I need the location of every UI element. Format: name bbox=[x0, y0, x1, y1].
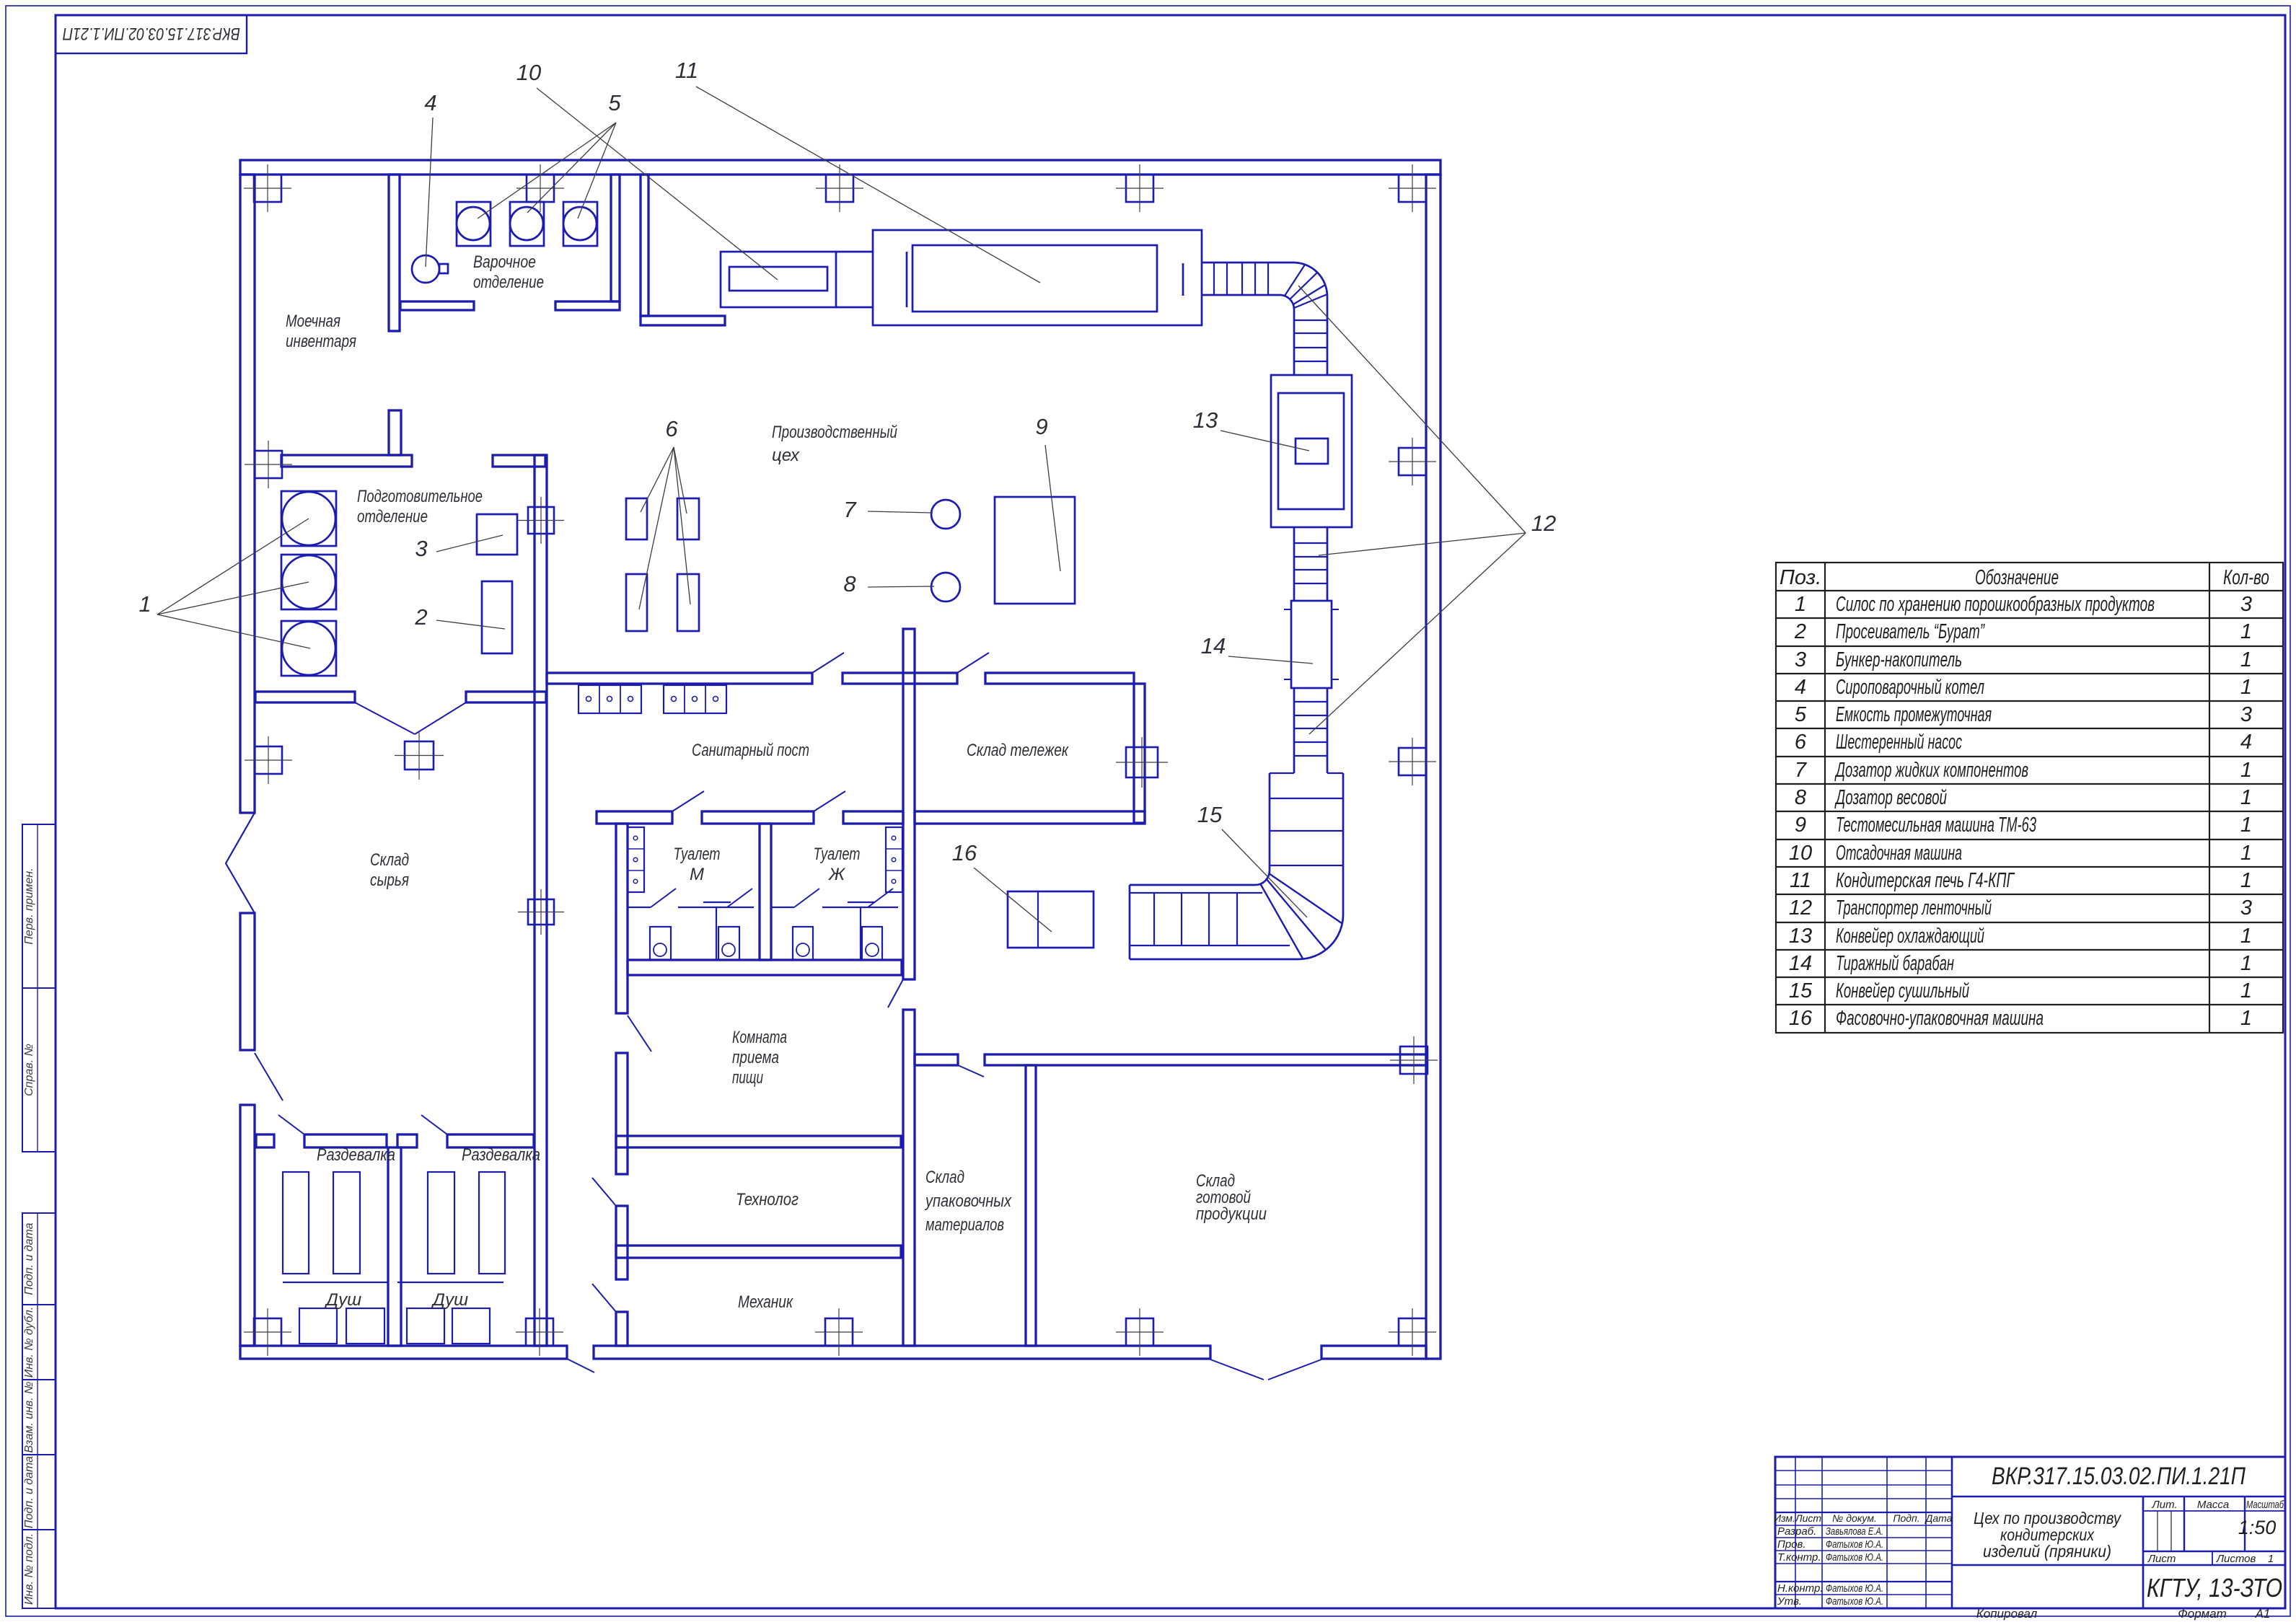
svg-text:материалов: материалов bbox=[925, 1215, 1004, 1235]
svg-text:10: 10 bbox=[516, 60, 541, 85]
svg-text:1: 1 bbox=[2240, 952, 2252, 975]
svg-text:11: 11 bbox=[1790, 869, 1811, 892]
svg-text:Склад: Склад bbox=[925, 1168, 964, 1187]
svg-text:Т.контр.: Т.контр. bbox=[1777, 1551, 1821, 1564]
svg-text:9: 9 bbox=[1035, 414, 1047, 439]
svg-text:Душ: Душ bbox=[431, 1290, 468, 1310]
svg-text:инвентаря: инвентаря bbox=[286, 332, 356, 351]
svg-text:Бункер-накопитель: Бункер-накопитель bbox=[1836, 648, 1962, 671]
svg-text:15: 15 bbox=[1789, 979, 1813, 1002]
svg-text:Фатыхов Ю.А.: Фатыхов Ю.А. bbox=[1826, 1582, 1883, 1595]
svg-text:Шестеренный насос: Шестеренный насос bbox=[1836, 731, 1962, 754]
svg-text:Взам. инв. №: Взам. инв. № bbox=[23, 1382, 35, 1453]
svg-text:приема: приема bbox=[732, 1048, 779, 1067]
svg-text:1: 1 bbox=[2240, 620, 2252, 643]
svg-text:1: 1 bbox=[2240, 786, 2252, 809]
svg-text:Лит.: Лит. bbox=[2151, 1499, 2177, 1511]
svg-text:Пров.: Пров. bbox=[1777, 1538, 1806, 1551]
svg-text:10: 10 bbox=[1789, 842, 1812, 865]
svg-text:3: 3 bbox=[415, 536, 427, 561]
svg-text:2: 2 bbox=[414, 604, 427, 630]
svg-text:Подп.: Подп. bbox=[1893, 1512, 1919, 1524]
svg-text:7: 7 bbox=[843, 497, 857, 522]
svg-text:Кондитерская печь Г4-КПГ: Кондитерская печь Г4-КПГ bbox=[1836, 869, 2015, 892]
svg-text:Ж: Ж bbox=[828, 865, 846, 884]
svg-text:Разраб.: Разраб. bbox=[1777, 1525, 1816, 1538]
svg-text:4: 4 bbox=[2240, 731, 2252, 754]
svg-text:Отсадочная машина: Отсадочная машина bbox=[1836, 842, 1962, 865]
svg-text:Производственный: Производственный bbox=[772, 423, 897, 442]
svg-text:1: 1 bbox=[138, 591, 151, 617]
svg-text:пищи: пищи bbox=[732, 1068, 763, 1088]
svg-text:Инв. № подл.: Инв. № подл. bbox=[23, 1533, 35, 1605]
svg-text:1: 1 bbox=[2240, 676, 2252, 699]
svg-text:1: 1 bbox=[2240, 814, 2252, 837]
svg-text:ВКР.317.15.03.02.ПИ.1.21П: ВКР.317.15.03.02.ПИ.1.21П bbox=[63, 24, 240, 43]
svg-text:1: 1 bbox=[2240, 842, 2252, 865]
svg-text:5: 5 bbox=[1795, 703, 1807, 726]
svg-text:Копировал: Копировал bbox=[1976, 1607, 2038, 1621]
svg-text:Поз.: Поз. bbox=[1780, 566, 1821, 589]
svg-text:2: 2 bbox=[1794, 620, 1806, 643]
svg-text:1: 1 bbox=[2240, 869, 2252, 892]
svg-text:Фатыхов Ю.А.: Фатыхов Ю.А. bbox=[1826, 1595, 1883, 1608]
svg-text:№ докум.: № докум. bbox=[1832, 1512, 1877, 1524]
svg-text:Санитарный пост: Санитарный пост bbox=[692, 741, 809, 760]
svg-text:9: 9 bbox=[1795, 814, 1806, 837]
svg-text:1: 1 bbox=[2240, 1007, 2252, 1030]
svg-text:Конвейер охлаждающий: Конвейер охлаждающий bbox=[1836, 925, 1984, 948]
svg-text:Листов: Листов bbox=[2216, 1553, 2256, 1565]
svg-text:Подп. и дата: Подп. и дата bbox=[23, 1456, 35, 1528]
svg-text:1: 1 bbox=[2268, 1553, 2274, 1565]
svg-text:Фатыхов Ю.А.: Фатыхов Ю.А. bbox=[1826, 1538, 1883, 1551]
svg-text:Дозатор жидких компонентов: Дозатор жидких компонентов bbox=[1834, 759, 2028, 782]
svg-text:Кол-во: Кол-во bbox=[2223, 566, 2269, 589]
svg-text:Перв. примен.: Перв. примен. bbox=[23, 868, 35, 944]
svg-text:4: 4 bbox=[424, 90, 436, 115]
svg-text:Лист: Лист bbox=[2147, 1553, 2176, 1565]
svg-text:Моечная: Моечная bbox=[286, 312, 340, 331]
svg-text:16: 16 bbox=[952, 840, 977, 865]
svg-text:Склад: Склад bbox=[370, 850, 409, 870]
svg-text:16: 16 bbox=[1789, 1007, 1813, 1030]
svg-text:Обозначение: Обозначение bbox=[1975, 566, 2059, 589]
svg-text:3: 3 bbox=[1795, 648, 1806, 671]
svg-text:цех: цех bbox=[772, 446, 800, 465]
svg-text:Инв. № дубл.: Инв. № дубл. bbox=[23, 1307, 35, 1378]
svg-text:Душ: Душ bbox=[324, 1290, 361, 1310]
svg-text:Сироповарочный котел: Сироповарочный котел bbox=[1836, 676, 1984, 699]
svg-text:Подготовительное: Подготовительное bbox=[357, 487, 483, 506]
svg-text:отделение: отделение bbox=[473, 273, 544, 292]
svg-text:Транспортер ленточный: Транспортер ленточный bbox=[1836, 896, 1992, 920]
svg-text:Завьялова Е.А.: Завьялова Е.А. bbox=[1826, 1525, 1883, 1538]
svg-text:1: 1 bbox=[2240, 759, 2252, 782]
svg-text:3: 3 bbox=[2240, 593, 2252, 616]
svg-text:12: 12 bbox=[1789, 896, 1812, 920]
svg-text:Дозатор весовой: Дозатор весовой bbox=[1834, 786, 1947, 809]
svg-text:6: 6 bbox=[665, 416, 678, 441]
svg-text:1: 1 bbox=[2240, 979, 2252, 1002]
svg-text:Склад тележек: Склад тележек bbox=[967, 741, 1069, 760]
svg-text:Фасовочно-упаковочная машина: Фасовочно-упаковочная машина bbox=[1836, 1007, 2044, 1030]
svg-text:14: 14 bbox=[1789, 952, 1812, 975]
svg-text:Утв.: Утв. bbox=[1777, 1595, 1802, 1608]
svg-text:ВКР.317.15.03.02.ПИ.1.21П: ВКР.317.15.03.02.ПИ.1.21П bbox=[1992, 1463, 2246, 1490]
svg-text:1: 1 bbox=[1795, 593, 1806, 616]
svg-text:15: 15 bbox=[1197, 802, 1223, 827]
svg-text:1: 1 bbox=[2240, 925, 2252, 948]
svg-text:11: 11 bbox=[675, 58, 698, 83]
svg-text:Силос по хранению порошкообраз: Силос по хранению порошкообразных продук… bbox=[1836, 593, 2155, 616]
svg-text:5: 5 bbox=[608, 90, 621, 115]
svg-text:3: 3 bbox=[2240, 896, 2252, 920]
svg-text:Конвейер сушильный: Конвейер сушильный bbox=[1836, 979, 1969, 1002]
svg-text:Справ. №: Справ. № bbox=[23, 1044, 35, 1096]
svg-text:Подп. и дата: Подп. и дата bbox=[23, 1222, 35, 1295]
svg-text:Масса: Масса bbox=[2197, 1499, 2229, 1511]
svg-text:13: 13 bbox=[1789, 925, 1812, 948]
svg-text:Тестомесильная машина ТМ-63: Тестомесильная машина ТМ-63 bbox=[1836, 814, 2036, 837]
svg-text:7: 7 bbox=[1795, 759, 1808, 782]
svg-text:Раздевалка: Раздевалка bbox=[317, 1145, 395, 1165]
svg-text:Комната: Комната bbox=[732, 1028, 787, 1047]
svg-text:продукции: продукции bbox=[1196, 1204, 1267, 1224]
svg-text:4: 4 bbox=[1795, 676, 1806, 699]
svg-text:Варочное: Варочное bbox=[473, 252, 536, 272]
svg-text:Н.контр.: Н.контр. bbox=[1777, 1582, 1824, 1595]
svg-text:Раздевалка: Раздевалка bbox=[462, 1145, 540, 1165]
svg-text:Туалет: Туалет bbox=[674, 845, 721, 864]
svg-text:3: 3 bbox=[2240, 703, 2252, 726]
svg-text:Механик: Механик bbox=[738, 1292, 793, 1312]
svg-text:изделий (пряники): изделий (пряники) bbox=[1983, 1542, 2111, 1561]
svg-text:Формат: Формат bbox=[2178, 1607, 2227, 1621]
svg-text:упаковочных: упаковочных bbox=[924, 1191, 1011, 1211]
svg-text:сырья: сырья bbox=[370, 870, 409, 890]
svg-text:Технолог: Технолог bbox=[736, 1190, 799, 1209]
svg-text:отделение: отделение bbox=[357, 507, 428, 526]
svg-text:6: 6 bbox=[1795, 731, 1807, 754]
svg-text:М: М bbox=[690, 865, 704, 884]
svg-text:14: 14 bbox=[1201, 633, 1226, 658]
svg-text:Тиражный барабан: Тиражный барабан bbox=[1836, 952, 1954, 975]
svg-text:13: 13 bbox=[1193, 407, 1218, 433]
svg-text:Изм.: Изм. bbox=[1774, 1512, 1795, 1524]
svg-text:Масштаб: Масштаб bbox=[2246, 1499, 2284, 1511]
svg-text:8: 8 bbox=[843, 571, 856, 596]
svg-text:1:50: 1:50 bbox=[2238, 1517, 2277, 1538]
svg-text:Лист: Лист bbox=[1795, 1512, 1821, 1524]
svg-text:12: 12 bbox=[1531, 511, 1556, 536]
svg-text:КГТУ, 13-ЗТО: КГТУ, 13-ЗТО bbox=[2147, 1573, 2282, 1603]
svg-text:1: 1 bbox=[2240, 648, 2252, 671]
svg-text:Емкость промежуточная: Емкость промежуточная bbox=[1836, 703, 1992, 726]
svg-text:8: 8 bbox=[1795, 786, 1806, 809]
svg-text:Просеиватель “Бурат”: Просеиватель “Бурат” bbox=[1836, 620, 1985, 643]
svg-text:Дата: Дата bbox=[1925, 1512, 1953, 1524]
svg-text:А1: А1 bbox=[2255, 1607, 2271, 1621]
svg-text:Фатыхов Ю.А.: Фатыхов Ю.А. bbox=[1826, 1551, 1883, 1564]
svg-text:Туалет: Туалет bbox=[814, 845, 861, 864]
